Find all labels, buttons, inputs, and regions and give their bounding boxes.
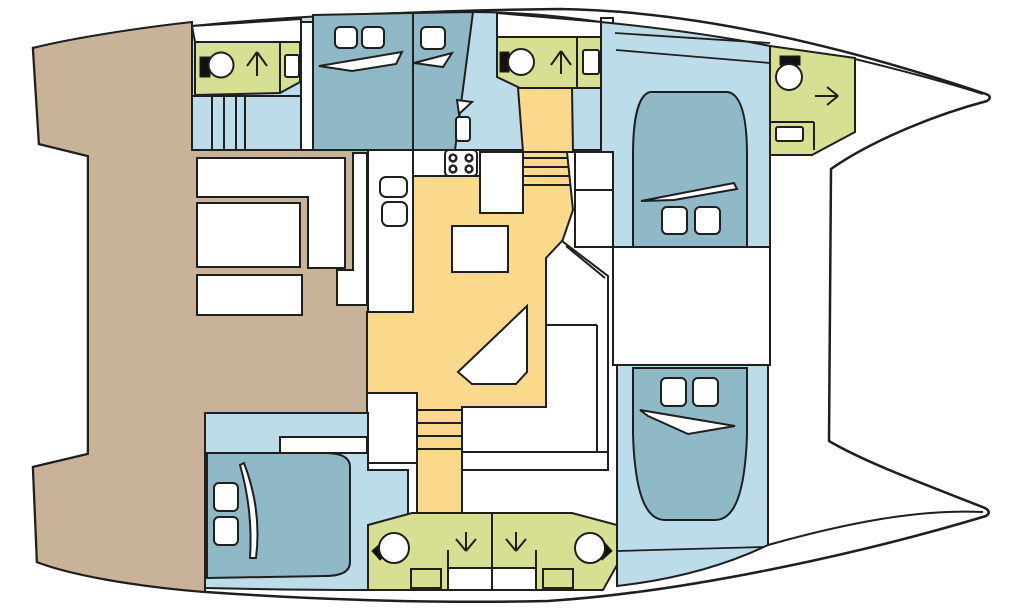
port-hull <box>192 12 613 152</box>
yacht-floor-plan <box>0 0 1024 615</box>
bed-pillow-icon <box>335 27 357 48</box>
port-mid-head <box>497 37 601 88</box>
bed-pillow-icon <box>693 378 718 406</box>
bed-pillow-icon <box>362 27 384 48</box>
bed-pillow-icon <box>695 207 720 234</box>
forepeak-head <box>770 46 855 155</box>
port-aft-cabins <box>313 12 473 150</box>
port-hull-aft-head <box>195 42 300 95</box>
table-icon <box>452 226 508 272</box>
cabinet <box>575 152 613 247</box>
sink-icon <box>285 55 299 77</box>
bed-pillow-icon <box>661 378 686 406</box>
bathroom-floor-patch <box>492 568 536 590</box>
port-forward-cabin <box>601 22 770 247</box>
toilet-icon <box>508 49 534 75</box>
wall <box>301 22 313 150</box>
cockpit-door <box>367 393 417 463</box>
bed-pillow-icon <box>214 483 238 511</box>
toilet-icon <box>209 53 234 78</box>
galley-sink-icon <box>382 202 407 226</box>
galley-sink-icon <box>380 177 407 197</box>
sink-icon <box>583 50 599 74</box>
shelf <box>280 437 367 453</box>
galley-counter <box>368 150 413 312</box>
locker-icon <box>456 117 470 141</box>
starboard-forward-cabin <box>617 365 768 586</box>
salon-galley <box>367 150 613 513</box>
hull-corridor <box>518 88 573 152</box>
bed-pillow-icon <box>421 27 445 49</box>
starboard-heads <box>368 513 617 590</box>
island-berth <box>633 92 747 247</box>
toilet-icon <box>575 533 605 563</box>
bed-pillow-icon <box>214 517 238 545</box>
cockpit-table-icon <box>197 203 300 267</box>
mid-utility-room <box>613 247 770 365</box>
cockpit-bench-icon <box>197 275 302 315</box>
berth <box>207 453 350 578</box>
toilet-icon <box>379 533 409 563</box>
bathroom-floor-patch <box>448 568 492 590</box>
cabinet <box>480 152 523 213</box>
toilet-icon <box>776 64 802 90</box>
island-berth <box>633 368 747 520</box>
sink-icon <box>776 127 803 141</box>
bed-pillow-icon <box>662 207 687 234</box>
side-deck-patch <box>192 19 301 42</box>
